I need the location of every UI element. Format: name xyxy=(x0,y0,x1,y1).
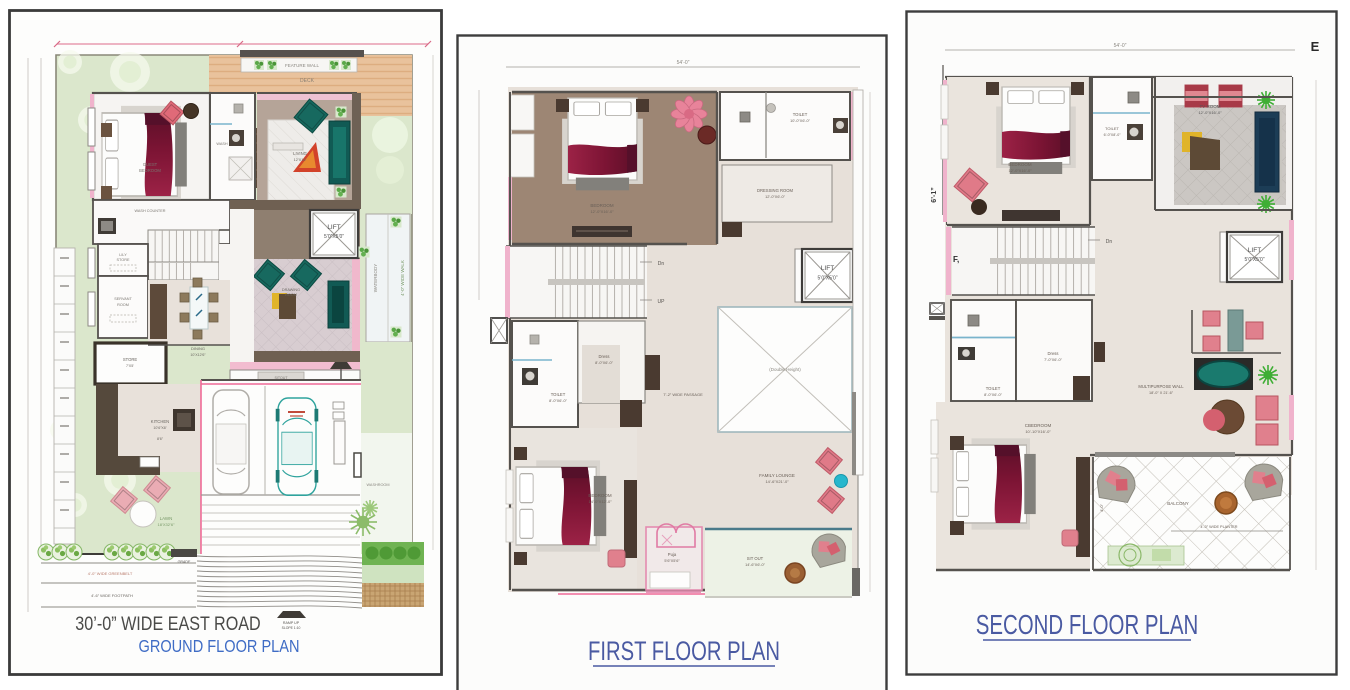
svg-text:SLOPE 1:10: SLOPE 1:10 xyxy=(282,626,301,630)
svg-text:4’-0”: 4’-0” xyxy=(1099,503,1104,512)
svg-text:7’X5’: 7’X5’ xyxy=(126,364,134,368)
svg-text:7’-2” WIDE PASSAGE: 7’-2” WIDE PASSAGE xyxy=(663,392,703,397)
svg-text:30’-0” WIDE EAST ROAD: 30’-0” WIDE EAST ROAD xyxy=(75,613,260,635)
svg-text:BALCONY: BALCONY xyxy=(1167,501,1189,506)
svg-text:4’-0” WIDE PLANTER: 4’-0” WIDE PLANTER xyxy=(1200,525,1237,529)
svg-text:Dn: Dn xyxy=(1106,239,1113,245)
svg-text:10’6”X8’: 10’6”X8’ xyxy=(153,426,166,430)
svg-text:18’X32’6”: 18’X32’6” xyxy=(158,522,176,527)
svg-text:DRAWING: DRAWING xyxy=(282,288,300,292)
svg-text:TOILET: TOILET xyxy=(793,112,808,117)
svg-text:5’0”X5’0”: 5’0”X5’0” xyxy=(324,234,344,240)
svg-text:12’-0”X16’-0”: 12’-0”X16’-0” xyxy=(1198,110,1222,115)
svg-text:14’-0”X12’-0”: 14’-0”X12’-0” xyxy=(588,499,612,504)
svg-text:5’6”X5’6”: 5’6”X5’6” xyxy=(664,559,680,563)
svg-text:GUEST: GUEST xyxy=(143,162,158,167)
svg-text:Dress: Dress xyxy=(1048,351,1059,356)
svg-text:SERVANT: SERVANT xyxy=(114,297,132,301)
svg-text:18’-0” X 21’-6”: 18’-0” X 21’-6” xyxy=(1149,391,1174,395)
svg-text:10’-10”X16’-0”: 10’-10”X16’-0” xyxy=(1025,429,1051,434)
svg-text:SIT OUT: SIT OUT xyxy=(747,556,764,561)
svg-text:E: E xyxy=(1311,39,1320,54)
svg-text:10’X12’6”: 10’X12’6” xyxy=(190,353,206,357)
svg-text:5’0”X5’0”: 5’0”X5’0” xyxy=(817,276,837,282)
svg-text:12’-0”X16’-0”: 12’-0”X16’-0” xyxy=(590,209,614,214)
svg-text:6’-1”: 6’-1” xyxy=(931,187,938,203)
svg-text:SECOND FLOOR PLAN: SECOND FLOOR PLAN xyxy=(976,610,1199,641)
svg-text:6’-0”X8’-0”: 6’-0”X8’-0” xyxy=(1104,133,1122,137)
svg-text:BEDROOM: BEDROOM xyxy=(139,168,161,173)
svg-text:7’-0”X6’-0”: 7’-0”X6’-0” xyxy=(1044,358,1062,362)
svg-text:BEDROOM: BEDROOM xyxy=(588,493,612,498)
svg-text:12’X16’: 12’X16’ xyxy=(294,158,307,162)
svg-text:DRESSING ROOM: DRESSING ROOM xyxy=(757,188,794,193)
svg-text:ROOM: ROOM xyxy=(285,293,297,297)
svg-text:8’6”: 8’6” xyxy=(157,437,164,441)
svg-text:DINING: DINING xyxy=(191,346,205,351)
svg-text:4’-6” WIDE FOOTPATH: 4’-6” WIDE FOOTPATH xyxy=(91,593,133,598)
svg-text:LIFT: LIFT xyxy=(327,224,340,231)
svg-text:GROUND FLOOR PLAN: GROUND FLOOR PLAN xyxy=(138,637,299,657)
svg-text:LAWN: LAWN xyxy=(160,516,173,521)
svg-text:5’0”X5’0”: 5’0”X5’0” xyxy=(1244,257,1264,263)
svg-text:RAMP UP: RAMP UP xyxy=(283,621,300,625)
svg-text:54’-0”: 54’-0” xyxy=(677,60,690,66)
svg-text:TOILET: TOILET xyxy=(1105,126,1119,131)
svg-text:TOILET: TOILET xyxy=(986,386,1001,391)
svg-text:LIVING: LIVING xyxy=(293,151,307,156)
svg-text:KITCHEN: KITCHEN xyxy=(151,419,169,424)
svg-text:FEATURE WALL: FEATURE WALL xyxy=(285,63,320,68)
svg-text:(Double Height): (Double Height) xyxy=(769,367,801,372)
svg-text:UP: UP xyxy=(658,299,666,305)
svg-text:STORE: STORE xyxy=(116,258,129,262)
svg-text:WASH: WASH xyxy=(216,142,228,146)
svg-text:BEDROOM: BEDROOM xyxy=(590,203,614,208)
svg-text:ROOM: ROOM xyxy=(117,303,129,307)
svg-text:STORE: STORE xyxy=(123,357,138,362)
svg-text:WASHROOM: WASHROOM xyxy=(366,483,389,487)
svg-text:8’-0”X6’-0”: 8’-0”X6’-0” xyxy=(549,399,567,403)
svg-text:LIFT: LIFT xyxy=(821,265,834,272)
svg-text:MULTIPURPOSE WALL: MULTIPURPOSE WALL xyxy=(1138,384,1184,389)
svg-text:54’-0”: 54’-0” xyxy=(1114,43,1127,49)
svg-text:4’-0” WIDE WALK: 4’-0” WIDE WALK xyxy=(400,260,405,296)
svg-text:4’-0” WIDE GREENBELT: 4’-0” WIDE GREENBELT xyxy=(88,571,133,576)
svg-text:F,: F, xyxy=(953,255,959,264)
svg-text:WATERBODY: WATERBODY xyxy=(373,264,378,293)
svg-text:TOILET: TOILET xyxy=(551,392,566,397)
svg-text:DECK: DECK xyxy=(300,78,315,84)
svg-text:CBEDROOM: CBEDROOM xyxy=(1025,423,1052,428)
svg-text:8’-0”X6’-0”: 8’-0”X6’-0” xyxy=(984,393,1002,397)
svg-text:10’-0”X6’-0”: 10’-0”X6’-0” xyxy=(790,119,811,123)
svg-text:Dress: Dress xyxy=(599,354,610,359)
svg-text:12’-0”X16’-0”: 12’-0”X16’-0” xyxy=(1008,168,1032,173)
svg-text:FAMILY LOUNGE: FAMILY LOUNGE xyxy=(759,473,795,478)
svg-text:14’-6”X21’-0”: 14’-6”X21’-0” xyxy=(765,479,789,484)
svg-text:Puja: Puja xyxy=(668,552,677,557)
svg-text:WASH COUNTER: WASH COUNTER xyxy=(134,209,165,213)
svg-text:LILY: LILY xyxy=(119,253,127,257)
svg-text:FIRST FLOOR PLAN: FIRST FLOOR PLAN xyxy=(588,636,780,667)
svg-text:BEDROOM: BEDROOM xyxy=(1008,162,1032,167)
svg-text:TV ROOM: TV ROOM xyxy=(1200,104,1221,109)
svg-text:12’-0”X6’-0”: 12’-0”X6’-0” xyxy=(765,195,786,199)
svg-text:LIFT: LIFT xyxy=(1248,247,1261,254)
svg-text:14’-6”X6’-0”: 14’-6”X6’-0” xyxy=(745,563,766,567)
svg-text:Dn: Dn xyxy=(658,261,665,267)
svg-text:8’-0”X6’-0”: 8’-0”X6’-0” xyxy=(595,361,613,365)
